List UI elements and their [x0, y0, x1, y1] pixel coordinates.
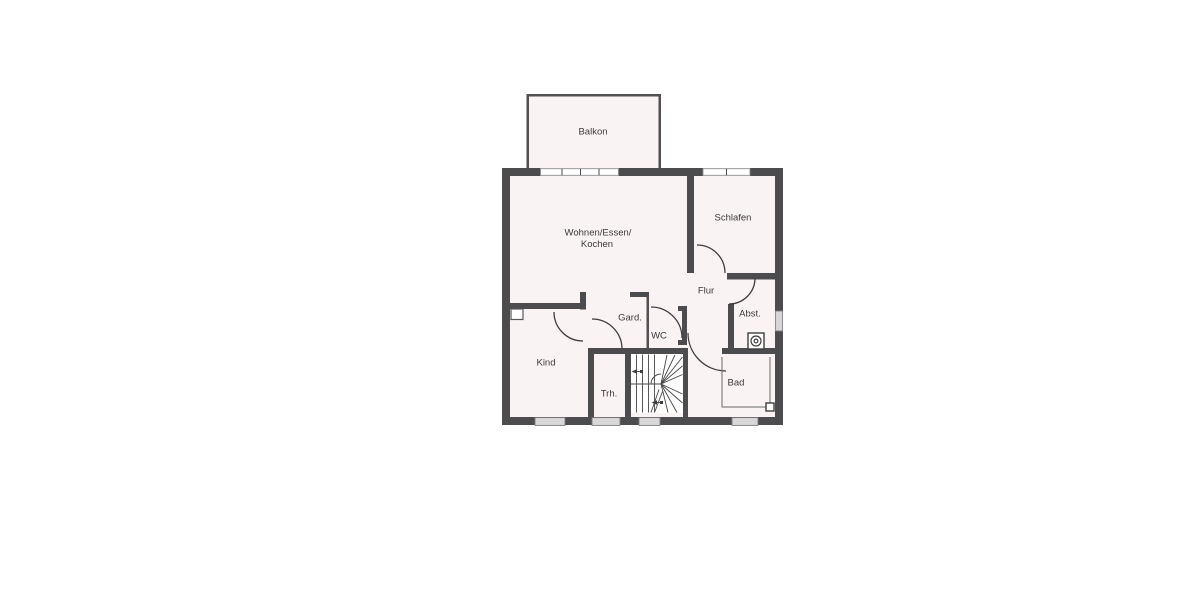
room-label-wohnen: Wohnen/Essen/	[565, 228, 632, 239]
washing-machine-icon	[748, 333, 764, 349]
room-label-balkon: Balkon	[578, 127, 607, 138]
room-label-bad: Bad	[728, 378, 745, 389]
wall-wc-left	[647, 297, 650, 349]
radiator-icon	[766, 403, 774, 411]
wall-abst-left	[728, 304, 734, 351]
wall-gard-top	[630, 292, 649, 297]
window-balcony-door	[541, 169, 619, 176]
room-label-wohnen-2: Kochen	[581, 239, 613, 250]
wall-stair-left	[625, 354, 631, 417]
room-label-flur: Flur	[698, 286, 714, 297]
room-label-wc: WC	[651, 331, 667, 342]
room-label-gard: Gard.	[618, 313, 642, 324]
room-label-trh: Trh.	[601, 389, 618, 400]
window-abst	[776, 311, 783, 331]
window-trh	[592, 418, 620, 426]
room-label-schlafen: Schlafen	[715, 213, 752, 224]
wall-kind-trh	[588, 348, 594, 417]
wall-stair-right	[683, 354, 688, 417]
wall-wohnen-schlafen	[687, 176, 694, 273]
wall-kind-top	[510, 303, 580, 309]
room-label-kind: Kind	[536, 358, 555, 369]
window-kind	[535, 418, 565, 426]
window-bad	[732, 418, 758, 426]
wall-schlafen-abst	[727, 273, 775, 280]
room-label-abst: Abst.	[739, 309, 761, 320]
wall-gard-stub	[580, 292, 586, 310]
window-schlafen	[703, 169, 750, 176]
wall-stair-top	[588, 348, 688, 354]
wall-wc-right	[682, 306, 687, 345]
duct-niche	[511, 309, 523, 320]
floor-plan-page: Balkon Wohnen/Essen/ Kochen Schlafen Flu…	[0, 0, 1200, 600]
window-stair	[639, 418, 660, 426]
floor-plan: Balkon Wohnen/Essen/ Kochen Schlafen Flu…	[0, 0, 1200, 600]
